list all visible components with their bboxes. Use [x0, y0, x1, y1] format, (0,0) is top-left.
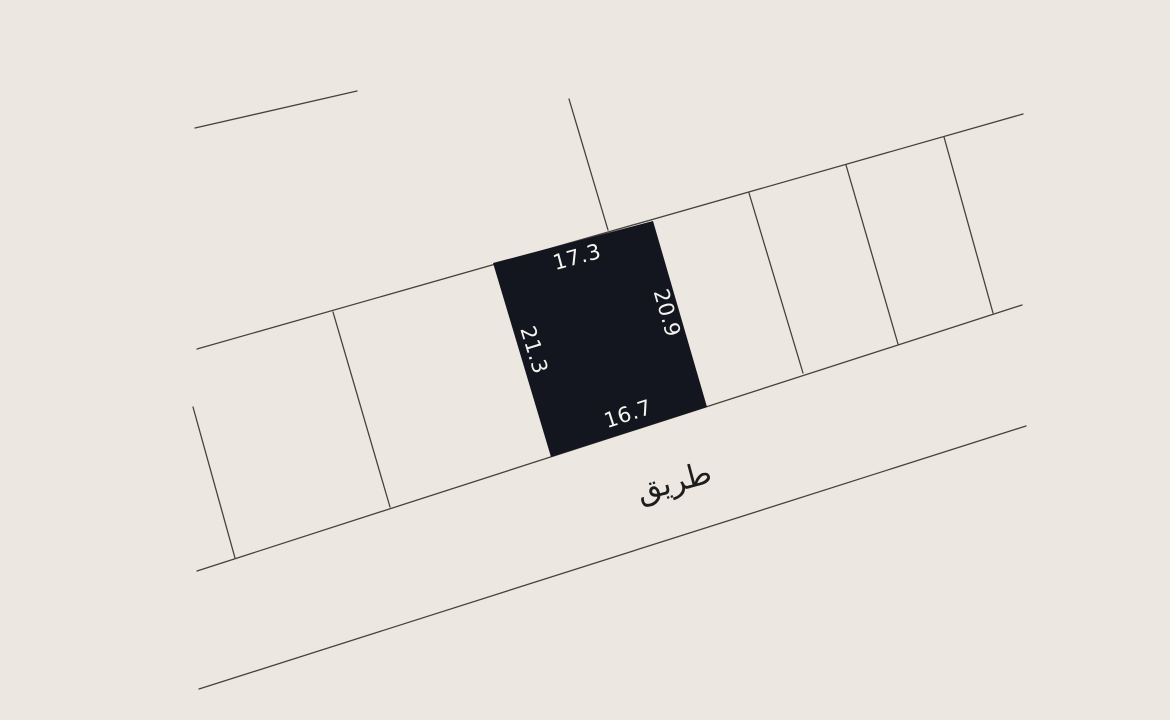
- parcel-map: 17.3 20.9 21.3 16.7 طريق: [0, 0, 1170, 720]
- plot-divider-east-1: [749, 193, 803, 373]
- plot-divider-east-2: [846, 165, 898, 344]
- plot-divider-west-1: [193, 407, 235, 558]
- north-block-edge-line: [195, 91, 357, 128]
- road-south-edge-line: [199, 426, 1026, 689]
- plot-divider-west-2: [333, 312, 390, 507]
- north-divider-line: [569, 99, 608, 230]
- plot-divider-east-3: [944, 137, 993, 313]
- selected-parcel[interactable]: [493, 221, 707, 457]
- survey-plan-canvas: [0, 0, 1170, 720]
